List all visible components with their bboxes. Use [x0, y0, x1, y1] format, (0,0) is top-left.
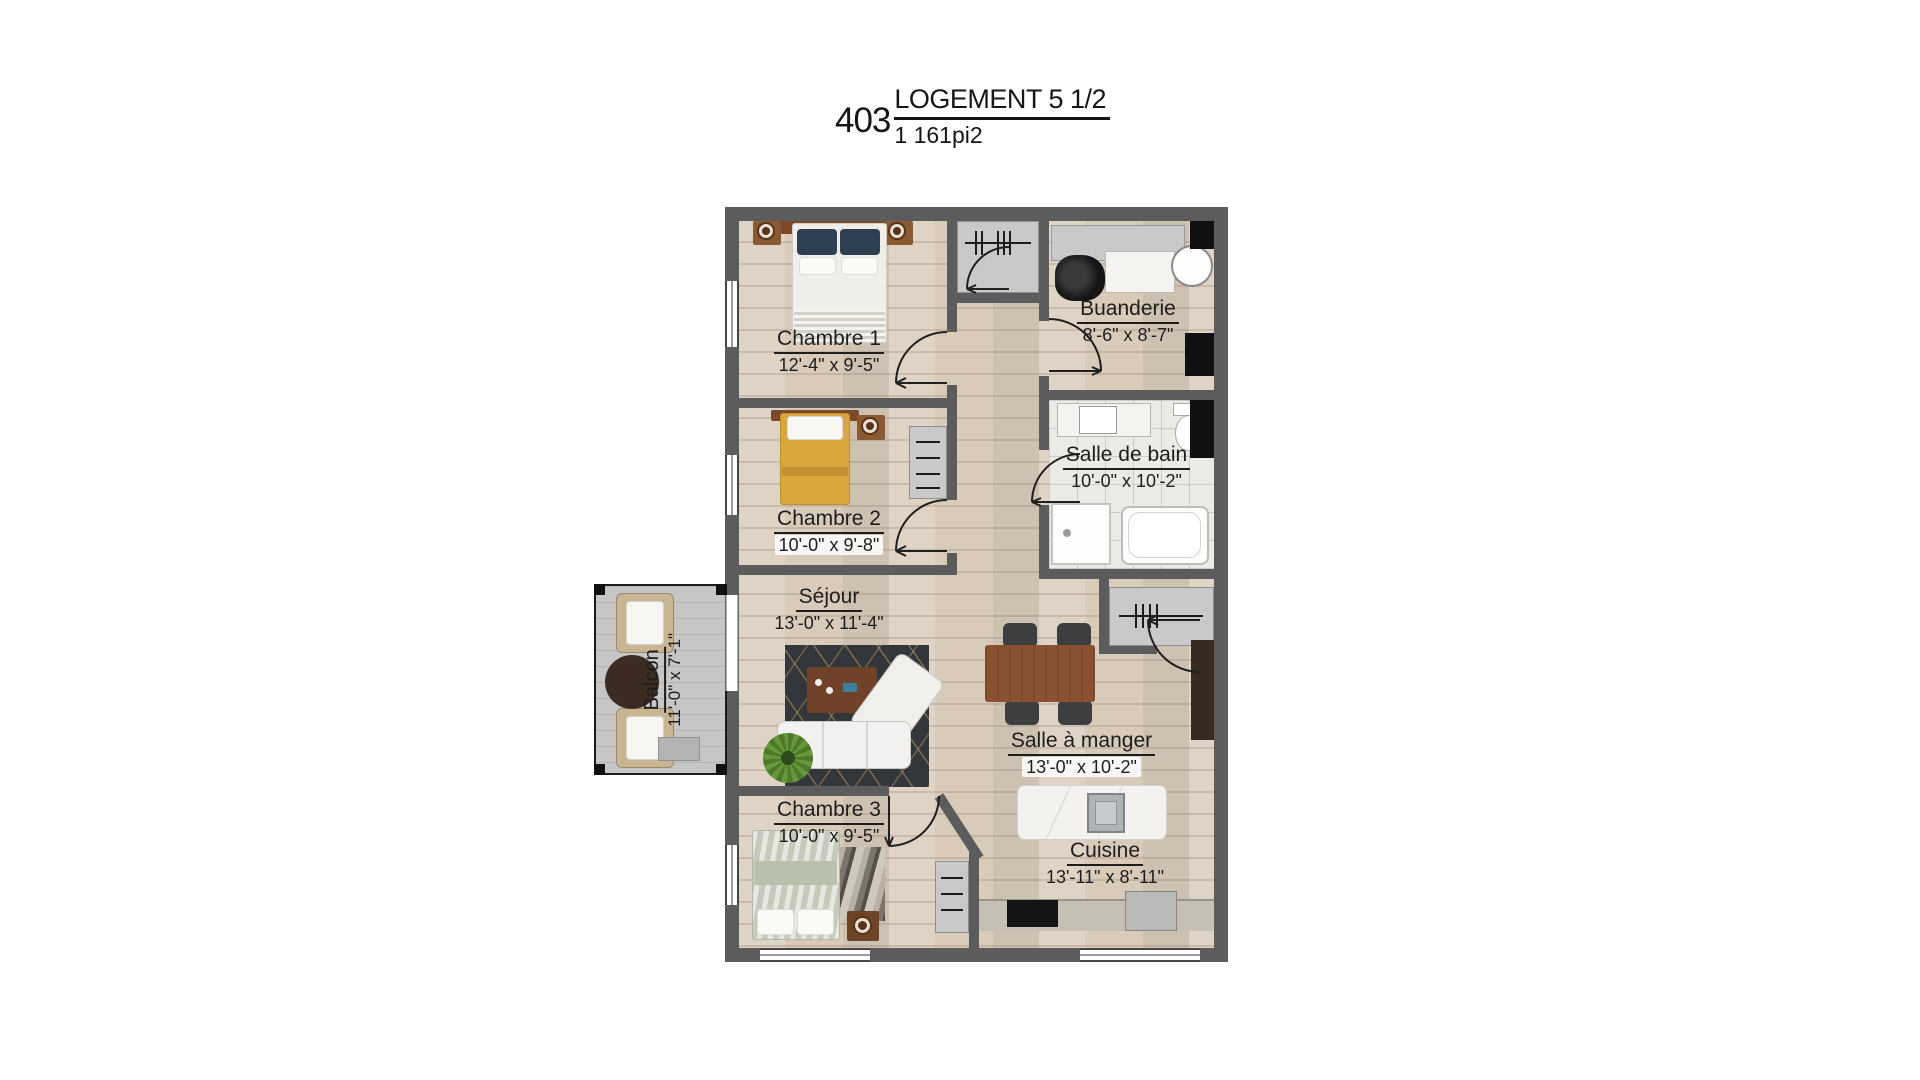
pillow — [797, 909, 834, 935]
closet-shelf — [916, 487, 940, 489]
wall-chambre1-chambre2 — [739, 398, 957, 408]
round-lamp-icon — [890, 224, 904, 238]
pillow — [841, 257, 878, 275]
vanity-sink — [1079, 406, 1117, 434]
table-decor — [843, 683, 857, 692]
floor-plan-page: { "title": { "unit_number": "403", "labe… — [0, 0, 1920, 1080]
railing-post — [594, 584, 605, 595]
closet-rod-tick — [981, 231, 983, 255]
wall-entry-closet-bottom — [1099, 646, 1157, 654]
refrigerator — [1125, 891, 1177, 931]
apartment-floor-plan: Chambre 1 12'-4" x 9'-5" Chambre 2 10'-0… — [725, 207, 1228, 962]
salle-a-manger-name: Salle à manger — [1008, 729, 1155, 756]
window-chambre3-south — [760, 948, 870, 962]
wall-hall-chambre2 — [947, 408, 957, 500]
plan-title: 403 LOGEMENT 5 1/2 1 161pi2 — [835, 84, 1110, 149]
dining-table — [985, 645, 1095, 702]
wall-hall-bathroom — [1039, 505, 1049, 579]
patio-chair — [616, 593, 674, 653]
laundry-sink — [1171, 245, 1213, 287]
room-label-salle-de-bain: Salle de bain 10'-0" x 10'-2" — [1039, 443, 1214, 491]
blanket-fold — [755, 861, 837, 885]
pillow — [797, 229, 837, 255]
balcony-deck: Balcon 11'-0" x 7'-1" — [594, 584, 727, 775]
table-decor — [826, 687, 833, 694]
round-lamp-icon — [759, 224, 773, 238]
pillow — [799, 257, 836, 275]
closet-shelf — [941, 909, 963, 911]
closet-rod-tick — [1009, 231, 1011, 255]
kitchen-pantry — [935, 861, 969, 933]
room-label-sejour: Séjour 13'-0" x 11'-4" — [744, 585, 914, 633]
salle-de-bain-dims: 10'-0" x 10'-2" — [1039, 471, 1214, 491]
unit-type-label: LOGEMENT 5 1/2 — [894, 84, 1110, 120]
patio-round-table — [605, 655, 659, 709]
sejour-dims: 13'-0" x 11'-4" — [744, 613, 914, 633]
balcony-sliding-door — [725, 595, 739, 691]
closet-rod-tick — [997, 231, 999, 255]
bathtub-basin — [1128, 512, 1201, 558]
railing-post — [716, 764, 727, 775]
window-chambre3 — [725, 845, 739, 905]
closet-shelf — [941, 877, 963, 879]
cuisine-name: Cuisine — [1067, 839, 1143, 866]
chambre1-name: Chambre 1 — [774, 327, 884, 354]
chair-cushion — [626, 601, 664, 645]
blanket-fold — [782, 467, 848, 476]
buanderie-name: Buanderie — [1077, 297, 1179, 324]
closet-rod-tick — [1149, 604, 1151, 628]
railing-post — [594, 764, 605, 775]
chambre2-name: Chambre 2 — [774, 507, 884, 534]
chambre2-dims: 10'-0" x 9'-8" — [775, 535, 884, 555]
room-label-salle-a-manger: Salle à manger 13'-0" x 10'-2" — [989, 729, 1174, 777]
door-leaf-buanderie — [1049, 367, 1101, 375]
round-lamp-icon — [863, 419, 877, 433]
closet-rod-tick — [1003, 231, 1005, 255]
shower-drain — [1063, 529, 1071, 537]
room-label-chambre1: Chambre 1 12'-4" x 9'-5" — [739, 327, 919, 375]
chambre3-dims: 10'-0" x 9'-5" — [739, 826, 919, 846]
wall-closet-bottom — [957, 293, 1049, 303]
room-label-cuisine: Cuisine 13'-11" x 8'-11" — [1021, 839, 1189, 887]
chambre1-dims: 12'-4" x 9'-5" — [739, 355, 919, 375]
room-label-chambre3: Chambre 3 10'-0" x 9'-5" — [739, 798, 919, 846]
pillow — [757, 909, 794, 935]
cuisine-dims: 13'-11" x 8'-11" — [1021, 867, 1189, 887]
window-chambre1 — [725, 281, 739, 347]
closet-shelf — [916, 441, 940, 443]
closet-rod-tick — [1135, 604, 1137, 628]
entry-door-mat — [1191, 640, 1214, 740]
service-chase — [1190, 221, 1214, 249]
pillow — [840, 229, 880, 255]
closet-shelf — [916, 457, 940, 459]
window-chambre2 — [725, 455, 739, 515]
washer-dryer — [1105, 251, 1175, 293]
salle-a-manger-dims: 13'-0" x 10'-2" — [1022, 757, 1141, 777]
wall-chambre2-sejour — [739, 565, 957, 575]
closet-rod-tick — [1156, 604, 1158, 628]
wall-chambre3-cuisine — [969, 851, 979, 948]
title-fraction: LOGEMENT 5 1/2 1 161pi2 — [894, 84, 1110, 149]
shower — [1051, 503, 1111, 565]
wall-buanderie-bathroom — [1039, 390, 1214, 400]
striped-rug — [840, 847, 885, 921]
wall-sejour-chambre3 — [739, 786, 889, 796]
wall-hall-chambre1 — [947, 221, 957, 332]
wall-entry-closet-left — [1099, 579, 1109, 654]
closet-shelf — [941, 893, 963, 895]
laundry-basket — [1055, 255, 1105, 301]
stove — [1007, 900, 1058, 927]
wall-bathroom-entry — [1039, 569, 1214, 579]
room-label-chambre2: Chambre 2 10'-0" x 9'-8" — [739, 507, 919, 555]
closet-rod-tick — [975, 231, 977, 255]
dining-chair — [1005, 700, 1039, 725]
pillow — [787, 416, 843, 440]
unit-area: 1 161pi2 — [894, 122, 982, 149]
room-label-buanderie: Buanderie 8'-6" x 8'-7" — [1047, 297, 1209, 345]
window-cuisine — [1080, 948, 1200, 962]
closet-rod — [1119, 615, 1203, 617]
unit-number: 403 — [835, 101, 890, 141]
sejour-name: Séjour — [796, 585, 863, 612]
sink-basin — [1095, 801, 1117, 825]
closet-shelf — [916, 473, 940, 475]
round-speaker-icon — [855, 918, 870, 933]
salle-de-bain-name: Salle de bain — [1063, 443, 1190, 470]
buanderie-dims: 8'-6" x 8'-7" — [1047, 325, 1209, 345]
door-leaf-chambre1 — [896, 378, 947, 388]
potted-plant — [763, 733, 813, 783]
table-decor — [815, 679, 822, 686]
chambre3-name: Chambre 3 — [774, 798, 884, 825]
railing-post — [716, 584, 727, 595]
closet-rod-tick — [1142, 604, 1144, 628]
dining-chair — [1058, 700, 1092, 725]
balcony-mat — [658, 737, 700, 761]
